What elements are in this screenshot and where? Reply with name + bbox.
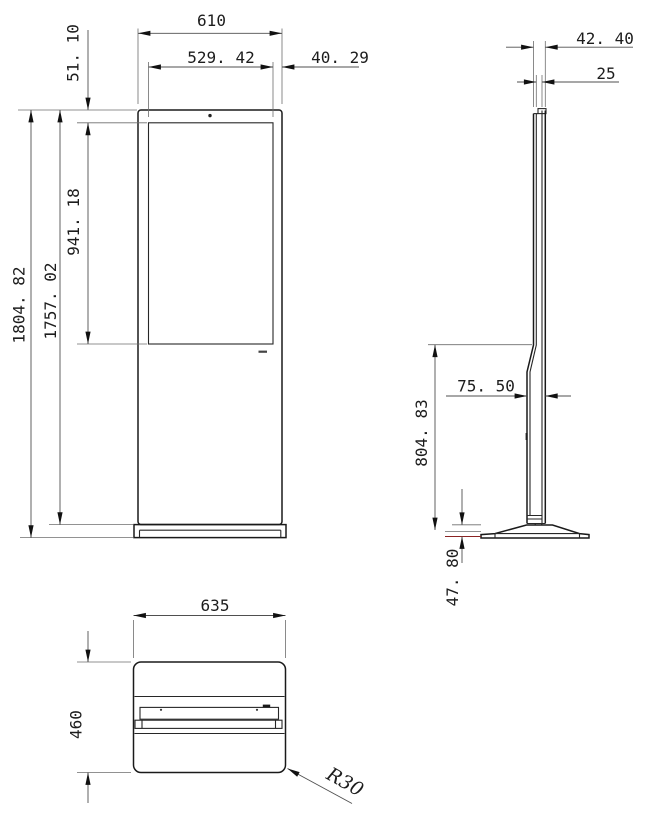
base-plate-front	[134, 525, 286, 538]
dim-front-overall-height: 1804. 82	[10, 110, 138, 538]
bracket-bar	[135, 720, 282, 728]
dim-label-screen-top-offset: 51. 10	[64, 24, 83, 82]
extension-lines	[445, 525, 481, 532]
dim-side-lower-depth: 75. 50	[446, 377, 571, 397]
cabinet-outline	[138, 110, 282, 525]
screen-outline	[149, 123, 274, 344]
dim-front-screen-height: 941. 18	[64, 123, 147, 344]
dim-label-base-width: 635	[201, 596, 230, 615]
bottom-view: 635 460 R30	[67, 596, 368, 804]
base-plate-channel	[140, 530, 281, 537]
dim-side-screen-depth: 25	[517, 64, 619, 107]
dim-front-screen-right-offset: 40. 29	[282, 48, 369, 67]
dim-label-screen-right-offset: 40. 29	[311, 48, 369, 67]
side-view: 42. 40 25 75. 50 804. 83 47. 80	[412, 29, 634, 606]
extension-lines	[534, 41, 546, 107]
dim-label-overall-height: 1804. 82	[10, 266, 29, 343]
dim-label-base-height: 47. 80	[443, 549, 462, 607]
dim-label-corner-radius: R30	[322, 763, 367, 801]
front-view: 610 529. 42 40. 29 51. 10 941. 18 1804. …	[10, 11, 369, 538]
extension-lines	[536, 75, 542, 107]
front-view-object	[134, 110, 286, 538]
column-joint-lines	[527, 516, 545, 526]
side-view-object	[481, 109, 589, 538]
dim-label-lower-depth: 75. 50	[457, 377, 515, 396]
extension-lines	[18, 110, 137, 538]
dim-label-cabinet-height: 1757. 02	[41, 262, 60, 339]
power-button-mark	[526, 433, 528, 440]
dim-front-screen-width: 529. 42	[149, 48, 274, 117]
dim-label-top-depth: 42. 40	[576, 29, 634, 48]
extension-lines	[134, 620, 286, 658]
dim-side-lower-height: 804. 83	[412, 345, 532, 530]
extension-lines	[149, 62, 274, 117]
dim-label-overall-width: 610	[197, 11, 226, 30]
extension-lines	[77, 123, 147, 344]
foot-outline	[481, 525, 589, 538]
ir-sensor-mark	[259, 351, 268, 353]
dim-label-base-depth: 460	[67, 710, 86, 739]
dim-bottom-base-depth: 460	[67, 631, 132, 803]
dim-bottom-corner-radius: R30	[288, 763, 368, 804]
screw-dot-left	[160, 709, 162, 711]
dim-bottom-base-width: 635	[134, 596, 286, 658]
bracket-bar-caps	[142, 720, 276, 728]
dim-side-base-height: 47. 80	[443, 489, 481, 606]
dim-front-screen-top-offset: 51. 10	[64, 24, 89, 110]
bottom-view-object	[134, 662, 286, 773]
dim-label-screen-width: 529. 42	[187, 48, 254, 67]
screw-dot-right	[256, 709, 258, 711]
dim-label-screen-height: 941. 18	[64, 188, 83, 255]
dim-label-lower-height: 804. 83	[412, 399, 431, 466]
base-plate-outline	[134, 662, 286, 773]
dim-front-cabinet-height: 1757. 02	[41, 110, 60, 525]
connector-mark	[263, 705, 270, 708]
dim-label-screen-depth: 25	[596, 64, 615, 83]
drawing-canvas: 610 529. 42 40. 29 51. 10 941. 18 1804. …	[0, 0, 651, 826]
kiosk-technical-drawing: 610 529. 42 40. 29 51. 10 941. 18 1804. …	[0, 0, 651, 826]
camera-icon	[208, 114, 211, 117]
